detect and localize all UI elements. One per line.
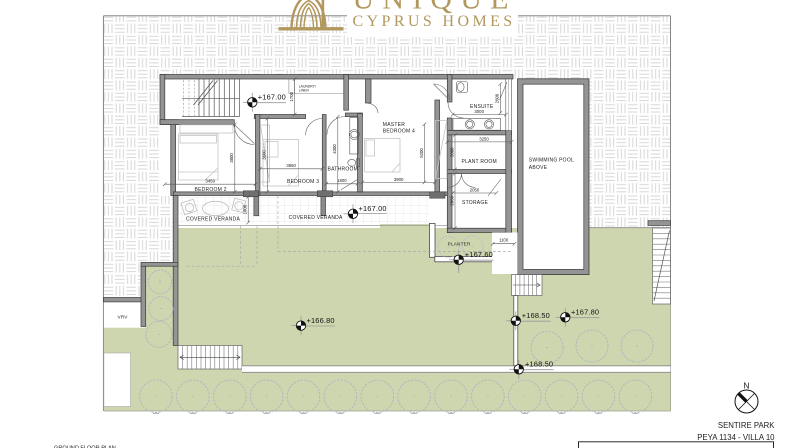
svg-text:BEDROOM 4: BEDROOM 4 xyxy=(383,129,415,135)
svg-text:2050: 2050 xyxy=(470,187,480,192)
svg-text:PEYA 1134 - VILLA 10: PEYA 1134 - VILLA 10 xyxy=(697,433,775,442)
svg-text:1800: 1800 xyxy=(337,178,347,183)
svg-text:PLANTER: PLANTER xyxy=(448,242,471,247)
svg-text:+167.60: +167.60 xyxy=(465,250,493,259)
svg-text:1700: 1700 xyxy=(289,91,294,101)
svg-text:BEDROOM 3: BEDROOM 3 xyxy=(287,179,319,185)
svg-text:2850: 2850 xyxy=(449,195,454,205)
svg-text:STORAGE: STORAGE xyxy=(462,200,489,206)
svg-text:SENTIRE PARK: SENTIRE PARK xyxy=(718,421,775,430)
svg-text:VRV: VRV xyxy=(118,315,129,320)
svg-text:2000: 2000 xyxy=(449,147,454,157)
svg-text:1100: 1100 xyxy=(499,238,509,243)
svg-text:PLANT ROOM: PLANT ROOM xyxy=(462,159,497,165)
svg-text:COVERED VERANDA: COVERED VERANDA xyxy=(289,215,343,221)
svg-text:CYPRUS HOMES: CYPRUS HOMES xyxy=(353,13,516,30)
svg-text:+166.80: +166.80 xyxy=(307,316,335,325)
svg-text:2600: 2600 xyxy=(495,93,500,103)
svg-text:SWIMMING POOL: SWIMMING POOL xyxy=(529,158,574,164)
svg-text:1800: 1800 xyxy=(243,204,248,214)
svg-text:3450: 3450 xyxy=(205,179,215,184)
svg-text:MASTER: MASTER xyxy=(383,122,405,128)
svg-text:+167.00: +167.00 xyxy=(359,204,387,213)
svg-text:3650: 3650 xyxy=(286,163,296,168)
svg-text:ENSUITE: ENSUITE xyxy=(470,104,494,110)
svg-text:4300: 4300 xyxy=(332,144,337,154)
svg-text:5200: 5200 xyxy=(419,148,424,158)
svg-text:3900: 3900 xyxy=(394,177,404,182)
svg-text:BEDROOM 2: BEDROOM 2 xyxy=(195,187,227,193)
svg-text:3800: 3800 xyxy=(229,153,234,163)
svg-text:+168.50: +168.50 xyxy=(522,311,550,320)
svg-text:COVERED VERANDA: COVERED VERANDA xyxy=(186,216,240,222)
svg-text:+167.80: +167.80 xyxy=(571,308,599,317)
svg-text:+167.00: +167.00 xyxy=(258,93,286,102)
svg-text:+168.50: +168.50 xyxy=(525,360,553,369)
svg-text:3600: 3600 xyxy=(262,150,267,160)
svg-text:BATHROOM: BATHROOM xyxy=(328,167,359,173)
svg-text:3250: 3250 xyxy=(479,136,489,141)
svg-text:ABOVE: ABOVE xyxy=(529,165,548,171)
svg-text:N: N xyxy=(743,380,749,390)
svg-text:LINEN: LINEN xyxy=(299,88,310,92)
